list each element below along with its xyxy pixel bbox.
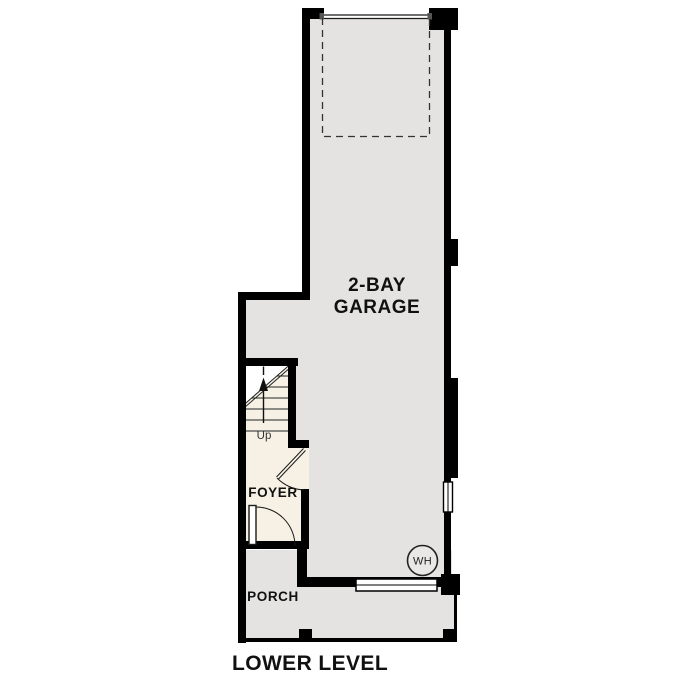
foyer-label: FOYER xyxy=(248,485,298,500)
floor-plan-canvas: WH 2-BAY GARAGE Up FOYER PORCH LOWER LEV… xyxy=(0,0,687,687)
wall-right-pier-upper xyxy=(444,239,458,266)
plan-title: LOWER LEVEL xyxy=(232,652,388,675)
water-heater-symbol: WH xyxy=(408,546,438,576)
front-door-leaf xyxy=(249,506,256,545)
porch-right-edge xyxy=(454,593,457,633)
garage-label-line2: GARAGE xyxy=(334,297,420,318)
garage-floor-extension xyxy=(244,299,310,366)
stairs-up-label: Up xyxy=(257,430,272,442)
wall-top-right xyxy=(429,8,458,30)
garage-door xyxy=(320,7,433,20)
garage-rear-threshold xyxy=(356,579,437,591)
floor-plan-page: WH 2-BAY GARAGE Up FOYER PORCH LOWER LEV… xyxy=(0,0,687,687)
wall-right-pier-lower xyxy=(444,378,458,478)
wall-stair-right xyxy=(288,358,296,444)
garage-label-line1: 2-BAY xyxy=(348,275,406,296)
wall-jog xyxy=(238,292,310,300)
wall-garage-left xyxy=(302,8,310,300)
garage-door-jamb-right xyxy=(428,13,433,20)
water-heater-label: WH xyxy=(413,556,432,568)
porch-label: PORCH xyxy=(247,589,299,604)
garage-door-jamb-left xyxy=(320,13,325,20)
porch-bottom-edge xyxy=(238,638,457,642)
wall-left-exterior xyxy=(238,292,246,643)
window-right-wall xyxy=(444,482,453,512)
garage-floor-strip xyxy=(295,360,308,452)
wall-door-jog xyxy=(288,440,309,448)
wall-foyer-right xyxy=(301,489,309,549)
porch-post-middle xyxy=(299,629,312,641)
